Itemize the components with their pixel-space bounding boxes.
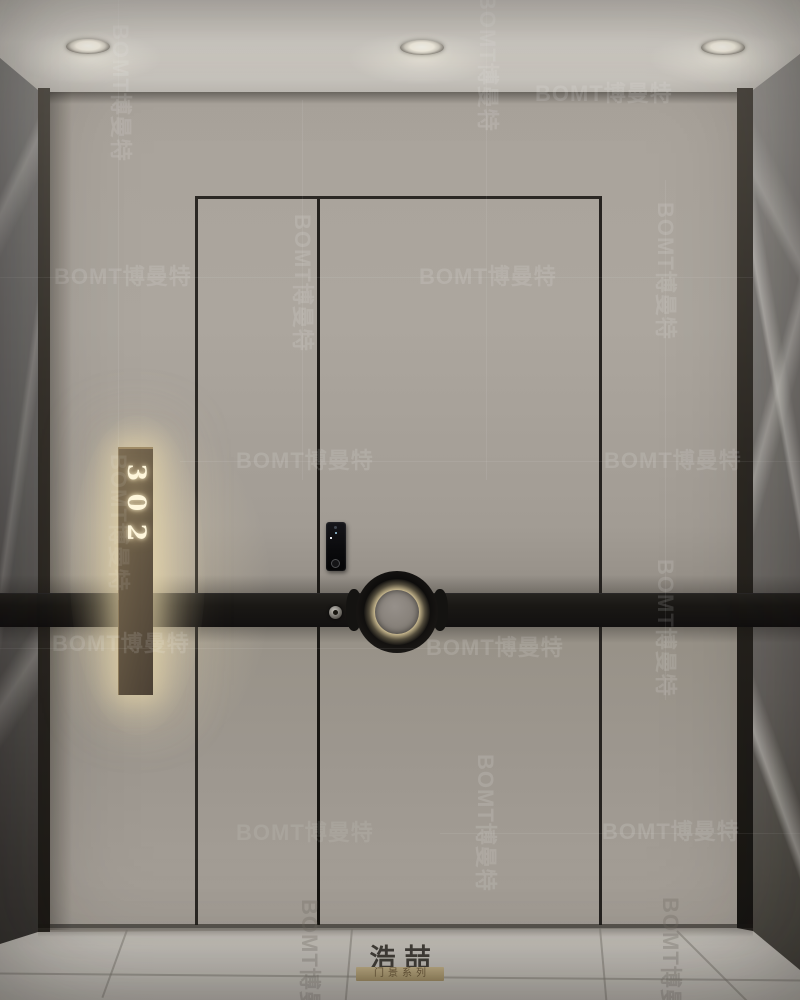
- lock-status-led: [335, 532, 337, 534]
- watermark-text: BOMT博曼特: [52, 631, 184, 657]
- lock-keypad: [330, 537, 342, 557]
- watermark-text-vertical: BOMT博曼特: [107, 24, 133, 156]
- watermark-text-vertical: BOMT博曼特: [105, 454, 131, 586]
- watermark-text-vertical: BOMT博曼特: [474, 0, 500, 126]
- fingerprint-icon: [331, 559, 340, 568]
- door-leaf-seam: [317, 199, 320, 925]
- recessed-light-icon: [701, 40, 745, 55]
- entrance-scene: 3 0 2 BOMT博曼特 BOMT博曼特 BOMT博曼特 BOMT博曼特 BO…: [0, 0, 800, 1000]
- watermark-text: BOMT博曼特: [604, 448, 736, 474]
- left-dark-trim: [38, 88, 50, 936]
- keyhole-icon: [329, 606, 342, 619]
- right-marble-wall: [753, 0, 800, 1000]
- watermark-text: BOMT博曼特: [602, 819, 734, 845]
- watermark-text-vertical: BOMT博曼特: [472, 754, 498, 886]
- watermark-text: BOMT博曼特: [236, 820, 368, 846]
- door-frame: [195, 196, 602, 925]
- watermark-text-vertical: BOMT博曼特: [289, 214, 315, 346]
- watermark-text-vertical: BOMT博曼特: [652, 202, 678, 334]
- watermark-text: BOMT博曼特: [419, 264, 551, 290]
- baseboard-soft-shadow: [38, 928, 753, 937]
- watermark-text-vertical: BOMT博曼特: [657, 897, 683, 1000]
- recessed-light-icon: [66, 39, 110, 54]
- watermark-text-vertical: BOMT博曼特: [296, 899, 322, 1000]
- right-dark-trim: [737, 88, 753, 934]
- watermark-text: BOMT博曼特: [535, 81, 667, 107]
- brand-series-badge: 门景系列: [356, 967, 444, 981]
- watermark-text: BOMT博曼特: [54, 264, 186, 290]
- watermark-text: BOMT博曼特: [426, 635, 558, 661]
- watermark-text: BOMT博曼特: [236, 448, 368, 474]
- watermark-text-vertical: BOMT博曼特: [652, 559, 678, 691]
- recessed-light-icon: [400, 40, 444, 55]
- lock-camera-icon: [334, 526, 337, 529]
- smart-lock: [326, 522, 346, 571]
- left-marble-wall: [0, 0, 38, 1000]
- ring-inner-disc: [375, 590, 419, 634]
